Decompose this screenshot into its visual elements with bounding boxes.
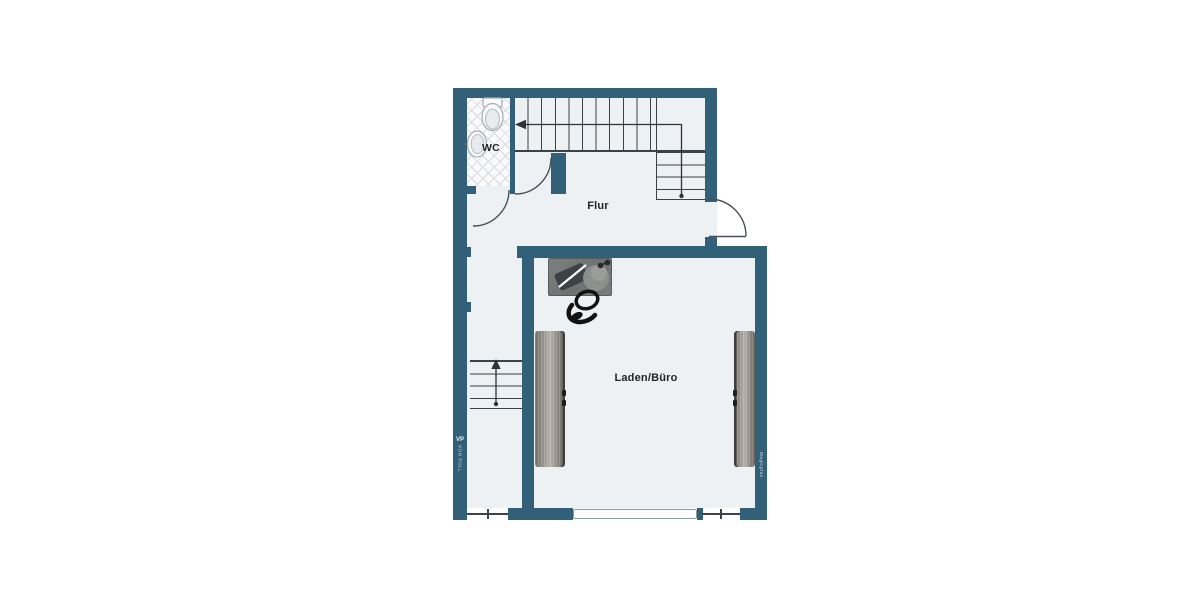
shelf-right-icon xyxy=(734,331,755,467)
stairs-corridor xyxy=(470,360,522,409)
floorplan-canvas: WC Flur Laden/Büro VP VON POLL Magicplan xyxy=(0,0,1200,600)
wall-top-upper xyxy=(455,88,717,98)
room-label-flur: Flur xyxy=(568,200,628,212)
wall-left-stub-1 xyxy=(453,247,471,257)
wall-wc-bottom xyxy=(453,186,476,194)
wall-right-upper xyxy=(705,88,717,202)
desk-icon xyxy=(548,258,612,296)
window-main xyxy=(573,509,697,519)
von-poll-logo-icon: VP xyxy=(456,437,464,443)
watermark-left: VP VON POLL xyxy=(453,437,467,495)
wall-bottom-c xyxy=(740,508,767,520)
wall-wc-right xyxy=(510,98,515,194)
wall-laden-left xyxy=(522,258,534,508)
room-label-laden: Laden/Büro xyxy=(586,372,706,384)
shelf-right-handle-icon xyxy=(733,390,737,396)
wall-lower-top xyxy=(517,246,767,258)
shelf-right-handle-icon xyxy=(733,400,737,406)
shelf-left-icon xyxy=(535,331,565,467)
watermark-right: Magicplan xyxy=(756,452,767,507)
floor-entrance-opening xyxy=(705,202,717,237)
stairs-lower-run xyxy=(656,152,705,200)
opening-right-tick xyxy=(720,509,722,519)
room-label-wc: WC xyxy=(474,142,508,154)
wall-stairdoor-stub xyxy=(551,153,566,194)
opening-left-tick xyxy=(487,509,489,519)
shelf-left-handle-icon xyxy=(562,390,566,396)
wall-left-stub-2 xyxy=(453,302,471,312)
shelf-left-handle-icon xyxy=(562,400,566,406)
wall-bottom-a xyxy=(508,508,573,520)
stairs-upper-run xyxy=(514,98,657,150)
